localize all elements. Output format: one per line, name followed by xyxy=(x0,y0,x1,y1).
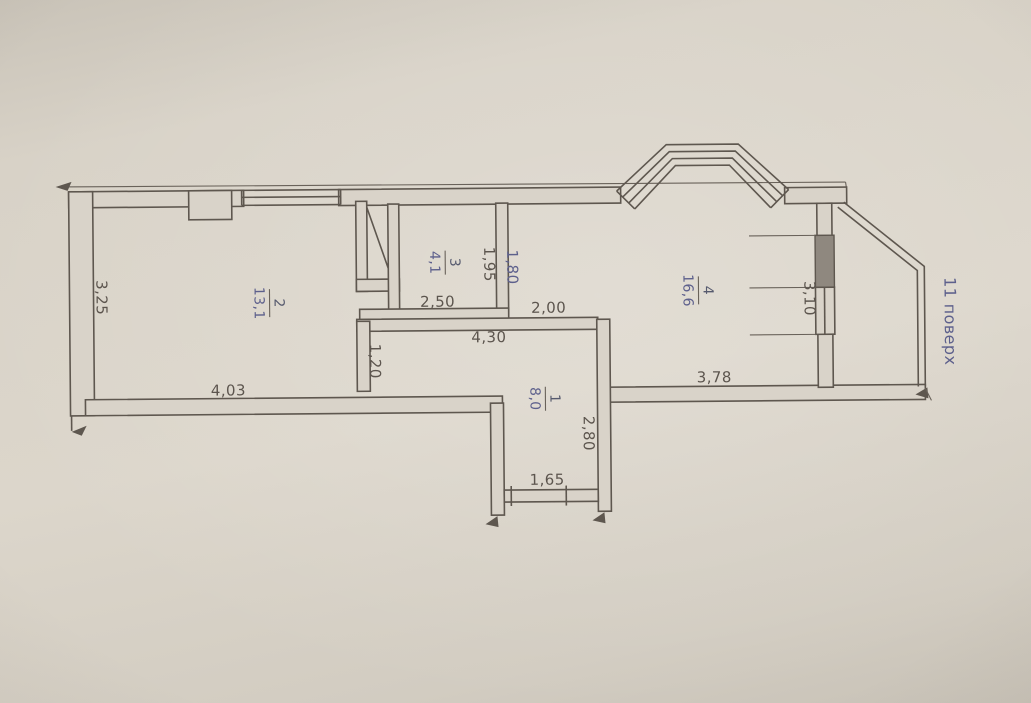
dim-room4-window: 3,10 xyxy=(800,281,818,316)
dim-left-height: 3,25 xyxy=(92,280,110,315)
top-wall-middle xyxy=(339,187,621,205)
bottom-wall-left xyxy=(85,396,502,416)
dim-room4-nook: 2,00 xyxy=(531,299,566,317)
room-number: 1 xyxy=(546,394,562,403)
room-number: 2 xyxy=(271,298,287,307)
wall-end-arrow xyxy=(485,516,498,527)
dim-room3-depth: 1,95 xyxy=(480,247,498,282)
room-area: 13,1 xyxy=(250,287,266,320)
room4-label: 4 16,6 xyxy=(679,274,715,307)
floor-plan-image: 2 13,1 3 4,1 4 16,6 1 8,0 3,25 4,03 1,20… xyxy=(0,0,1031,703)
dim-room3-width: 2,50 xyxy=(420,293,455,311)
room2-window xyxy=(242,190,341,206)
room-area: 8,0 xyxy=(526,387,542,411)
top-wall-right xyxy=(785,187,847,204)
closet-left-wall xyxy=(356,201,368,291)
dim-entrance-width: 1,65 xyxy=(530,471,565,489)
dim-hall-depth: 2,80 xyxy=(580,416,598,451)
bay-window xyxy=(616,144,789,209)
room3-label: 3 4,1 xyxy=(426,250,462,274)
left-wall xyxy=(69,192,95,416)
floor-plan-photo: 2 13,1 3 4,1 4 16,6 1 8,0 3,25 4,03 1,20… xyxy=(0,0,1031,703)
room-area: 4,1 xyxy=(426,251,442,275)
room-number: 3 xyxy=(446,258,462,267)
wall-end-arrow xyxy=(72,426,87,436)
vestibule-left-wall xyxy=(490,403,504,515)
floor-note: 11 поверх xyxy=(940,277,960,365)
balcony xyxy=(838,201,932,401)
wall-end-arrow xyxy=(592,512,605,523)
room2-label: 2 13,1 xyxy=(250,287,286,320)
bottom-wall-right xyxy=(601,384,925,402)
room-area: 16,6 xyxy=(679,274,695,307)
room-number: 4 xyxy=(699,286,715,295)
top-wall-niche-pier xyxy=(189,190,232,219)
dim-room4-width: 3,78 xyxy=(697,368,732,386)
room3-left-wall xyxy=(388,204,400,321)
room4-balcony-window xyxy=(749,235,835,335)
dim-hall-total-width: 4,30 xyxy=(471,328,506,346)
dim-room2-partition: 1,20 xyxy=(366,344,384,379)
dim-room2-width: 4,03 xyxy=(211,381,246,399)
room1-label: 1 8,0 xyxy=(526,387,562,411)
hall-right-wall xyxy=(597,319,612,511)
dim-room3-right-wall: 1,80 xyxy=(503,249,521,284)
